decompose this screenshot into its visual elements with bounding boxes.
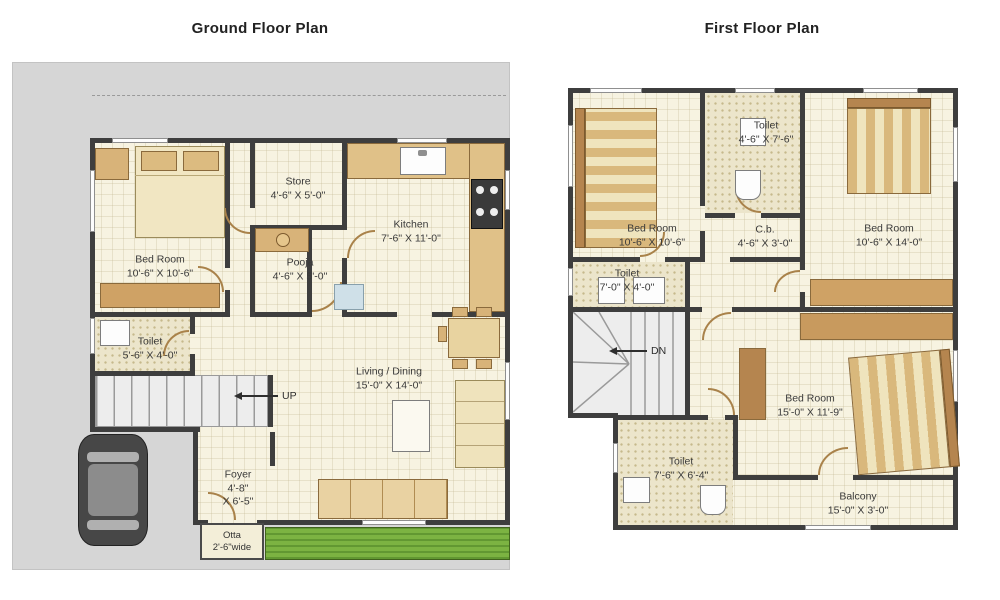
- wall: [250, 312, 312, 317]
- room-dims: 4'-6" X 7'-6": [739, 133, 794, 147]
- wardrobe: [100, 283, 220, 308]
- gf-store-label: Store 4'-6" X 5'-0": [271, 175, 326, 202]
- wall: [342, 312, 397, 317]
- window: [805, 525, 871, 530]
- room-dims: X 6'-5": [223, 496, 254, 510]
- bed: [848, 349, 960, 475]
- wall: [190, 312, 195, 334]
- chair: [438, 326, 447, 342]
- car-windshield: [87, 452, 139, 462]
- window: [953, 127, 958, 182]
- sofa: [318, 479, 448, 519]
- wall: [613, 525, 958, 530]
- ff-cupboard-label: C.b. 4'-6" X 3'-0": [738, 223, 793, 250]
- room-dims: 7'-6" X 11'-0": [381, 232, 441, 246]
- room-dims: 7'-6" X 6'-4": [654, 469, 709, 483]
- lawn-strip: [265, 527, 510, 560]
- gf-bedroom-label: Bed Room 10'-6" X 10'-6": [127, 253, 193, 280]
- ff-balcony-label: Balcony 15'-0" X 3'-0": [828, 490, 889, 517]
- window: [568, 125, 573, 187]
- room-name: Toilet: [739, 119, 794, 133]
- ff-bedroom-bottom-label: Bed Room 15'-0" X 11'-9": [777, 392, 843, 419]
- room-dims: 4'-6" X 3'-0": [738, 237, 793, 251]
- car: [78, 434, 148, 546]
- wall: [568, 257, 640, 262]
- chair: [476, 307, 492, 317]
- up-arrow-line: [242, 395, 278, 397]
- ground-floor-plan: UP Otta 2'-6"wide Bed Room 10'-6" X 10'-…: [12, 62, 510, 570]
- room-name: Kitchen: [381, 218, 441, 232]
- sofa: [455, 380, 505, 468]
- room-dims: 10'-6" X 10'-6": [619, 236, 685, 250]
- ff-staircase: [573, 312, 685, 415]
- pillow: [183, 151, 219, 171]
- room-dims: 15'-0" X 3'-0": [828, 504, 889, 518]
- window: [735, 88, 775, 93]
- room-dims: 15'-0" X 11'-9": [777, 406, 843, 420]
- ff-bedroom-right-label: Bed Room 10'-6" X 14'-0": [856, 222, 922, 249]
- stairs-up-label: UP: [282, 390, 297, 402]
- ground-floor-title: Ground Floor Plan: [192, 20, 329, 37]
- wall: [225, 138, 230, 268]
- otta: Otta 2'-6"wide: [200, 523, 264, 560]
- stairs-treads-icon: [573, 312, 685, 415]
- gf-kitchen-label: Kitchen 7'-6" X 11'-0": [381, 218, 441, 245]
- room-dims: 4'-8": [223, 482, 254, 496]
- floorplan-page: Ground Floor Plan First Floor Plan: [0, 0, 1000, 600]
- faucet: [418, 150, 427, 156]
- wall: [90, 312, 230, 317]
- ff-toilet-bottom-label: Toilet 7'-6" X 6'-4": [654, 455, 709, 482]
- wall: [853, 475, 958, 480]
- room-name: Pooja: [273, 256, 328, 270]
- gf-foyer-label: Foyer 4'-8" X 6'-5": [223, 469, 254, 510]
- wall: [90, 371, 195, 376]
- chair: [452, 359, 468, 369]
- window: [112, 138, 168, 143]
- window: [505, 362, 510, 420]
- window: [90, 318, 95, 354]
- wall: [738, 475, 818, 480]
- chair: [452, 307, 468, 317]
- room-name: Living / Dining: [356, 365, 422, 379]
- wall: [225, 290, 230, 312]
- burner-icon: [490, 186, 498, 194]
- bed-headboard: [847, 98, 931, 108]
- room-name: Toilet: [123, 335, 178, 349]
- wall: [705, 213, 735, 218]
- gf-pooja-label: Pooja 4'-6" X 5'-0": [273, 256, 328, 283]
- wash-basin: [623, 477, 650, 503]
- room-name: Bed Room: [856, 222, 922, 236]
- room-name: Balcony: [828, 490, 889, 504]
- wall: [732, 307, 958, 312]
- toilet-wc: [700, 485, 726, 515]
- otta-dims: 2'-6"wide: [213, 542, 251, 554]
- car-roof: [88, 464, 138, 516]
- stove: [471, 179, 503, 229]
- wall: [613, 415, 708, 420]
- wall: [568, 413, 618, 418]
- room-dims: 4'-6" X 5'-0": [273, 270, 328, 284]
- wall: [733, 420, 738, 480]
- bed-headboard: [575, 108, 585, 248]
- dresser: [95, 148, 129, 180]
- wall: [270, 432, 275, 466]
- window: [568, 268, 573, 296]
- wardrobe: [739, 348, 766, 420]
- gf-toilet-label: Toilet 5'-6" X 4'-0": [123, 335, 178, 362]
- wall: [250, 138, 255, 208]
- window: [590, 88, 642, 93]
- window: [953, 350, 958, 402]
- room-name: Toilet: [600, 267, 655, 281]
- wall: [613, 418, 618, 530]
- room-name: Bed Room: [619, 222, 685, 236]
- down-arrow-line: [617, 350, 647, 352]
- wall: [800, 88, 805, 270]
- wardrobe: [810, 279, 953, 306]
- wall: [268, 375, 273, 427]
- burner-icon: [476, 208, 484, 216]
- room-dims: 4'-6" X 5'-0": [271, 189, 326, 203]
- room-dims: 7'-0" X 4'-0": [600, 281, 655, 295]
- room-name: Bed Room: [127, 253, 193, 267]
- wall: [690, 307, 702, 312]
- toilet-wc: [735, 170, 761, 200]
- wardrobe: [800, 313, 953, 340]
- pillow: [141, 151, 177, 171]
- room-dims: 10'-6" X 14'-0": [856, 236, 922, 250]
- car-rear-window: [87, 520, 139, 530]
- up-arrow-icon: [234, 392, 242, 400]
- pooja-cabinet-knob: [276, 233, 290, 247]
- ff-toilet-mid-label: Toilet 7'-0" X 4'-0": [600, 267, 655, 294]
- coffee-table: [392, 400, 430, 452]
- otta-name: Otta: [223, 530, 241, 542]
- ff-toilet-top-label: Toilet 4'-6" X 7'-6": [739, 119, 794, 146]
- bed: [847, 108, 931, 194]
- wall: [730, 257, 805, 262]
- window: [863, 88, 918, 93]
- room-dims: 5'-6" X 4'-0": [123, 349, 178, 363]
- window: [505, 170, 510, 210]
- room-name: Bed Room: [777, 392, 843, 406]
- window: [362, 520, 426, 525]
- fridge: [334, 284, 364, 310]
- chair: [476, 359, 492, 369]
- gf-living-label: Living / Dining 15'-0" X 14'-0": [356, 365, 422, 392]
- room-name: Toilet: [654, 455, 709, 469]
- wall: [432, 312, 510, 317]
- room-name: C.b.: [738, 223, 793, 237]
- room-dims: 15'-0" X 14'-0": [356, 379, 422, 393]
- room-dims: 10'-6" X 10'-6": [127, 267, 193, 281]
- dining-table: [448, 318, 500, 358]
- down-arrow-icon: [609, 347, 617, 355]
- room-name: Store: [271, 175, 326, 189]
- setback-dashed-line: [92, 95, 506, 96]
- wall: [685, 262, 690, 418]
- burner-icon: [476, 186, 484, 194]
- first-floor-title: First Floor Plan: [705, 20, 820, 37]
- wall: [193, 432, 198, 525]
- burner-icon: [490, 208, 498, 216]
- bed-blanket-line: [135, 175, 225, 176]
- wall: [568, 307, 690, 312]
- window: [613, 443, 618, 473]
- gf-staircase: [95, 375, 268, 427]
- first-floor-plan: DN Bed Room 10'-6" X 10'-6" Toilet 4'-6"…: [565, 85, 960, 533]
- bed-mattress: [848, 350, 950, 476]
- wall: [761, 213, 805, 218]
- wall: [700, 88, 705, 206]
- stairs-down-label: DN: [651, 345, 666, 357]
- wall: [90, 427, 200, 432]
- ff-bedroom-topleft-label: Bed Room 10'-6" X 10'-6": [619, 222, 685, 249]
- room-name: Foyer: [223, 469, 254, 483]
